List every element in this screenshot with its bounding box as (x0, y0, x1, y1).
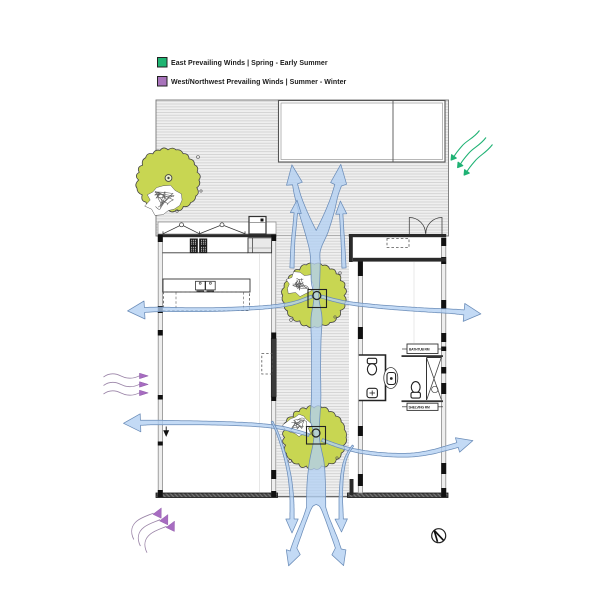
svg-text:SHELVING RM: SHELVING RM (409, 406, 430, 410)
svg-text:East Prevailing Winds | Spring: East Prevailing Winds | Spring - Early S… (171, 60, 328, 67)
svg-text:BATHTUB RM: BATHTUB RM (409, 348, 430, 352)
svg-text:West/Northwest Prevailing Wind: West/Northwest Prevailing Winds | Summer… (171, 79, 347, 86)
